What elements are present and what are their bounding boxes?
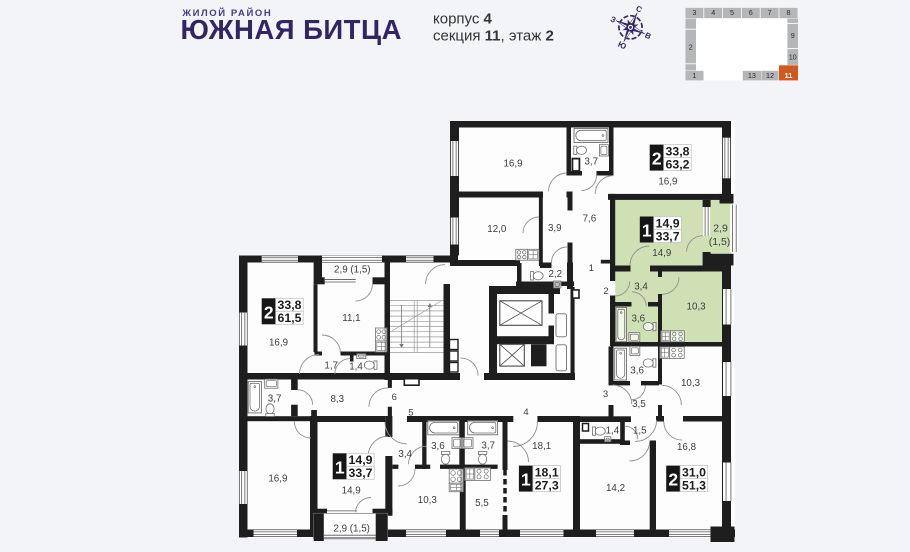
svg-text:61,5: 61,5	[278, 311, 302, 325]
svg-text:1: 1	[692, 71, 696, 80]
svg-text:14,2: 14,2	[606, 483, 625, 494]
svg-text:1,4: 1,4	[606, 425, 620, 436]
svg-text:2,2: 2,2	[548, 269, 562, 280]
svg-text:8,3: 8,3	[330, 394, 344, 405]
svg-text:2: 2	[603, 286, 608, 297]
svg-text:2,9 (1,5): 2,9 (1,5)	[334, 264, 371, 275]
svg-text:33,8: 33,8	[666, 144, 690, 158]
svg-text:1,4: 1,4	[349, 362, 363, 373]
svg-text:2: 2	[668, 470, 678, 490]
svg-text:6: 6	[749, 8, 753, 17]
svg-text:3,4: 3,4	[398, 449, 412, 460]
svg-text:7: 7	[768, 8, 772, 17]
svg-text:4: 4	[523, 407, 528, 418]
svg-text:3,6: 3,6	[630, 366, 644, 377]
svg-text:1: 1	[521, 470, 531, 490]
svg-text:3,9: 3,9	[548, 223, 562, 234]
svg-text:8: 8	[787, 8, 791, 17]
svg-text:27,3: 27,3	[535, 478, 559, 492]
svg-text:16,9: 16,9	[658, 177, 677, 188]
svg-text:14,9: 14,9	[652, 248, 671, 259]
svg-text:11,1: 11,1	[342, 313, 360, 324]
svg-text:33,8: 33,8	[278, 298, 302, 312]
svg-text:1,5: 1,5	[633, 425, 647, 436]
svg-text:секция 11, этаж 2: секция 11, этаж 2	[433, 28, 554, 45]
svg-text:11: 11	[785, 71, 793, 80]
svg-text:33,7: 33,7	[656, 229, 680, 243]
svg-text:12: 12	[766, 71, 774, 80]
svg-text:33,7: 33,7	[349, 466, 373, 480]
svg-text:10,3: 10,3	[681, 378, 701, 389]
svg-text:63,2: 63,2	[666, 157, 690, 171]
svg-text:31,0: 31,0	[682, 465, 706, 479]
svg-text:13: 13	[748, 71, 756, 80]
svg-text:4: 4	[711, 8, 715, 17]
svg-text:3,7: 3,7	[481, 440, 495, 451]
svg-text:12,0: 12,0	[487, 224, 507, 235]
svg-text:2: 2	[264, 302, 274, 322]
svg-text:5: 5	[730, 8, 734, 17]
svg-text:3,7: 3,7	[268, 394, 282, 405]
svg-text:2: 2	[689, 42, 693, 51]
svg-text:1: 1	[642, 221, 652, 241]
svg-text:10: 10	[789, 53, 797, 62]
svg-text:16,8: 16,8	[677, 442, 697, 453]
svg-text:18,1: 18,1	[532, 441, 551, 452]
svg-text:корпус 4: корпус 4	[433, 11, 493, 28]
svg-text:14,9: 14,9	[349, 453, 373, 467]
svg-text:1: 1	[335, 457, 345, 477]
svg-text:1,7: 1,7	[324, 361, 338, 372]
svg-text:3: 3	[692, 8, 696, 17]
svg-text:6: 6	[392, 392, 397, 403]
svg-text:14,9: 14,9	[656, 216, 680, 230]
svg-text:51,3: 51,3	[682, 478, 706, 492]
svg-text:2: 2	[652, 149, 662, 169]
svg-text:3,5: 3,5	[632, 399, 646, 410]
svg-text:5,5: 5,5	[475, 498, 489, 509]
svg-text:14,9: 14,9	[342, 486, 361, 497]
svg-text:3,7: 3,7	[584, 157, 598, 168]
svg-text:16,9: 16,9	[503, 159, 522, 170]
svg-text:9: 9	[791, 31, 795, 40]
svg-text:3,6: 3,6	[631, 314, 645, 325]
svg-text:5: 5	[408, 408, 413, 419]
svg-text:2,9 (1,5): 2,9 (1,5)	[333, 524, 370, 535]
svg-text:10,3: 10,3	[418, 495, 438, 506]
svg-text:18,1: 18,1	[535, 465, 559, 479]
svg-text:10,3: 10,3	[687, 302, 707, 313]
svg-text:(1,5): (1,5)	[709, 236, 731, 248]
svg-text:3,6: 3,6	[431, 441, 445, 452]
svg-text:2,9: 2,9	[713, 222, 728, 234]
svg-text:3: 3	[603, 389, 608, 400]
svg-text:1: 1	[589, 263, 594, 274]
svg-text:16,9: 16,9	[269, 337, 288, 348]
svg-text:ЮЖНАЯ БИТЦА: ЮЖНАЯ БИТЦА	[181, 14, 402, 45]
svg-text:16,9: 16,9	[268, 473, 287, 484]
svg-text:3,4: 3,4	[634, 282, 648, 293]
svg-text:7,6: 7,6	[583, 214, 597, 225]
